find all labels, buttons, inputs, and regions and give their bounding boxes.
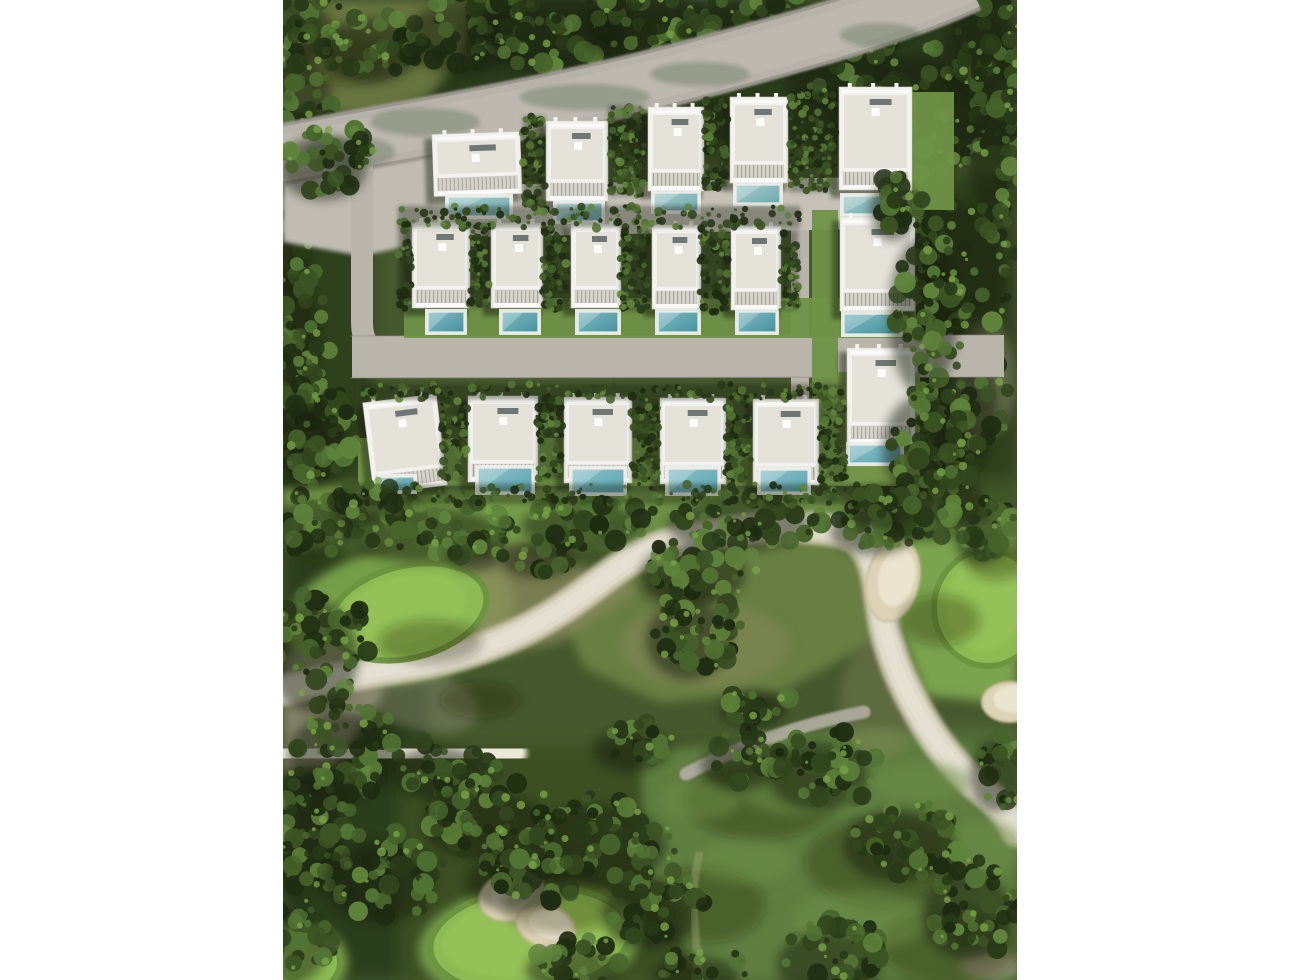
foliage [863, 933, 883, 953]
foliage-highlight [603, 938, 608, 943]
foliage [456, 23, 463, 30]
foliage [328, 708, 340, 720]
hedge-foliage [623, 269, 629, 275]
villa-parapet [842, 90, 909, 93]
foliage [335, 870, 346, 881]
foliage [330, 852, 340, 862]
hedge-foliage [677, 386, 681, 390]
page [0, 0, 1290, 980]
hedge-foliage [509, 214, 517, 222]
louver-band [652, 173, 700, 186]
hedge-foliage [562, 245, 571, 254]
foliage [650, 628, 661, 639]
foliage [636, 528, 646, 538]
hedge-foliage [476, 279, 480, 283]
hedge-foliage [702, 110, 710, 118]
hedge-foliage [707, 233, 710, 236]
villa [640, 103, 704, 199]
foliage [943, 237, 951, 245]
hedge-foliage [834, 439, 842, 447]
hedge-foliage [737, 475, 745, 483]
hedge-foliage [746, 500, 750, 504]
foliage [389, 11, 406, 28]
foliage-highlight [322, 957, 330, 965]
hedge-foliage [588, 204, 595, 211]
villa-sill [734, 178, 784, 182]
hedge-foliage [458, 413, 464, 419]
foliage [910, 346, 917, 353]
hedge-foliage [537, 383, 540, 386]
hedge-foliage [642, 297, 648, 303]
hedge-foliage [791, 141, 795, 145]
hedge-foliage [538, 140, 543, 145]
foliage [652, 540, 666, 554]
foliage-highlight [979, 761, 983, 765]
foliage [551, 13, 562, 24]
hedge-foliage [578, 220, 582, 224]
foliage-highlight [843, 746, 846, 749]
foliage-highlight [953, 453, 956, 456]
foliage [992, 727, 1009, 744]
skylight [673, 237, 688, 243]
foliage-highlight [656, 555, 661, 560]
foliage-highlight [700, 957, 706, 963]
villa-parapet [663, 401, 723, 404]
hedge-foliage [796, 139, 801, 144]
louver-band [550, 183, 604, 196]
hedge-foliage [607, 136, 612, 141]
hedge-foliage [561, 497, 568, 504]
hedge-foliage [794, 99, 798, 103]
foliage-highlight [965, 502, 973, 510]
foliage-highlight [932, 488, 939, 495]
hedge-foliage [471, 230, 475, 234]
hedge-foliage [778, 308, 782, 312]
foliage [964, 432, 971, 439]
foliage [648, 13, 669, 34]
foliage [658, 907, 669, 918]
foliage [741, 731, 757, 747]
hedge-foliage [724, 394, 728, 398]
foliage [999, 804, 1006, 811]
foliage [890, 427, 899, 436]
hedge-foliage [632, 138, 636, 142]
foliage [309, 72, 324, 87]
foliage-highlight [314, 808, 319, 813]
foliage [447, 545, 463, 561]
foliage [773, 757, 793, 777]
foliage [435, 13, 444, 22]
hedge-foliage [746, 398, 751, 403]
foliage [894, 272, 915, 293]
foliage-highlight [492, 517, 496, 521]
foliage [916, 309, 933, 326]
foliage-highlight [992, 523, 998, 529]
hedge-foliage [777, 276, 785, 284]
foliage-highlight [405, 509, 413, 517]
foliage-highlight [314, 881, 320, 887]
hedge-foliage [528, 130, 536, 138]
hedge-foliage [783, 491, 787, 495]
foliage [358, 145, 370, 157]
foliage [809, 782, 816, 789]
foliage [312, 520, 318, 526]
foliage-highlight [304, 269, 310, 275]
parapet-fin [855, 344, 859, 350]
hedge-foliage [482, 226, 489, 233]
hedge-foliage [453, 471, 460, 478]
hedge-foliage [654, 447, 658, 451]
hedge-foliage [550, 412, 554, 416]
hedge-foliage [577, 490, 581, 494]
foliage-highlight [696, 949, 703, 956]
foliage [694, 967, 701, 974]
foliage [591, 10, 608, 27]
pool-area [499, 309, 541, 335]
foliage [851, 841, 862, 852]
hedge-foliage [718, 489, 726, 497]
hedge-foliage [659, 498, 662, 501]
foliage-highlight [711, 589, 717, 595]
foliage [295, 587, 311, 603]
hedge-foliage [608, 153, 613, 158]
hedge-foliage [523, 189, 532, 198]
parapet-fin [471, 129, 475, 135]
hedge-foliage [484, 235, 488, 239]
foliage-highlight [382, 730, 387, 735]
foliage [292, 664, 299, 671]
foliage [500, 537, 508, 545]
foliage-highlight [676, 970, 680, 974]
foliage-highlight [540, 791, 548, 799]
foliage-highlight [311, 729, 317, 735]
hedge [607, 103, 647, 198]
foliage [909, 851, 929, 871]
hedge-foliage [424, 217, 431, 224]
hedge-foliage [822, 156, 826, 160]
hedge-foliage [826, 500, 832, 506]
foliage-highlight [421, 776, 428, 783]
hedge-foliage [505, 387, 510, 392]
hedge-foliage [818, 145, 822, 149]
hedge-foliage [752, 482, 757, 487]
foliage-highlight [342, 652, 350, 660]
hedge-foliage [832, 457, 840, 465]
hedge-foliage [639, 239, 646, 246]
foliage-highlight [651, 904, 659, 912]
foliage-highlight [315, 397, 321, 403]
hedge-foliage [806, 387, 811, 392]
foliage [369, 870, 379, 880]
foliage [711, 760, 722, 771]
foliage-highlight [337, 540, 343, 546]
hedge-foliage [415, 485, 423, 493]
hedge-foliage [508, 381, 516, 389]
hedge-foliage [815, 488, 823, 496]
hedge-foliage [825, 135, 830, 140]
hedge-foliage [435, 388, 441, 394]
foliage [944, 465, 958, 479]
hedge-foliage [621, 168, 628, 175]
hedge-foliage [636, 407, 639, 410]
shadow-patch [378, 620, 482, 664]
hedge-foliage [446, 429, 452, 435]
hedge-foliage [399, 257, 403, 261]
hedge-foliage [725, 421, 730, 426]
hedge-foliage [583, 211, 590, 218]
foliage-highlight [732, 691, 737, 696]
hedge-foliage [611, 105, 616, 110]
hedge-foliage [789, 159, 793, 163]
hedge-foliage [800, 177, 804, 181]
foliage [928, 215, 944, 231]
hedge-foliage [559, 253, 566, 260]
foliage-highlight [321, 776, 325, 780]
foliage-highlight [949, 276, 956, 283]
foliage-highlight [528, 59, 535, 66]
hedge-foliage [822, 161, 830, 169]
foliage [910, 840, 921, 851]
hedge-foliage [685, 203, 692, 210]
foliage [451, 519, 463, 531]
foliage [702, 636, 711, 645]
foliage [972, 67, 987, 82]
foliage [498, 515, 512, 529]
foliage [624, 36, 638, 50]
hedge-foliage [562, 259, 571, 268]
hedge-foliage [496, 211, 504, 219]
foliage-highlight [630, 736, 633, 739]
hedge-foliage [624, 494, 628, 498]
foliage [296, 340, 306, 350]
foliage [745, 548, 759, 562]
hedge-foliage [781, 392, 787, 398]
foliage [457, 536, 467, 546]
foliage [430, 824, 443, 837]
hedge-foliage [440, 216, 444, 220]
hedge-foliage [795, 148, 804, 157]
foliage [1001, 267, 1012, 278]
foliage [714, 620, 724, 630]
hedge-foliage [637, 228, 642, 233]
hedge-foliage [540, 258, 545, 263]
foliage-highlight [686, 882, 693, 889]
hedge-foliage [609, 127, 616, 134]
roof-unit [690, 419, 698, 427]
hedge-foliage [406, 386, 410, 390]
foliage-highlight [626, 530, 630, 534]
road-shadow [840, 23, 920, 47]
skylight [593, 409, 613, 415]
hedge-foliage [757, 499, 764, 506]
foliage-highlight [587, 845, 594, 852]
foliage-highlight [757, 758, 762, 763]
foliage [605, 530, 627, 552]
foliage [995, 188, 1009, 202]
hedge-foliage [397, 391, 404, 398]
hedge-foliage [635, 239, 640, 244]
parapet-fin [499, 128, 503, 134]
foliage-highlight [660, 922, 669, 931]
foliage [345, 704, 353, 712]
hedge-foliage [827, 463, 830, 466]
foliage [860, 533, 875, 548]
foliage [282, 92, 293, 103]
foliage [297, 495, 307, 505]
foliage-highlight [533, 514, 539, 520]
hedge-foliage [621, 395, 625, 399]
foliage [535, 16, 544, 25]
parapet-fin [673, 103, 677, 109]
foliage [472, 747, 481, 756]
foliage [850, 827, 860, 837]
hedge-foliage [444, 497, 450, 503]
foliage-highlight [975, 76, 979, 80]
foliage [978, 766, 999, 787]
villa-sill [416, 303, 466, 307]
hedge-foliage [715, 302, 719, 306]
foliage-highlight [377, 847, 386, 856]
foliage-highlight [695, 609, 700, 614]
hedge-foliage [836, 404, 844, 412]
foliage-highlight [1001, 241, 1008, 248]
foliage-highlight [881, 861, 887, 867]
foliage-highlight [360, 719, 368, 727]
foliage [629, 884, 636, 891]
foliage-highlight [976, 450, 981, 455]
foliage [365, 888, 379, 902]
foliage [908, 391, 926, 409]
foliage [362, 158, 369, 165]
hedge-foliage [720, 298, 728, 306]
hedge-foliage [769, 210, 776, 217]
hedge-foliage [550, 460, 558, 468]
foliage-highlight [923, 388, 929, 394]
foliage-highlight [302, 335, 306, 339]
foliage [348, 902, 368, 922]
hedge-foliage [617, 187, 624, 194]
hedge-foliage [482, 212, 486, 216]
foliage [865, 527, 872, 534]
foliage-highlight [918, 868, 922, 872]
roof-unit [595, 418, 603, 426]
hedge-foliage [805, 138, 808, 141]
foliage [631, 837, 639, 845]
roof-unit [756, 118, 764, 126]
foliage [785, 933, 797, 945]
hedge-foliage [833, 449, 837, 453]
foliage [325, 388, 337, 400]
foliage-highlight [717, 512, 720, 515]
foliage [383, 904, 393, 914]
foliage [465, 778, 475, 788]
foliage [480, 860, 492, 872]
hedge-foliage [814, 109, 822, 117]
hedge-foliage [477, 241, 481, 245]
foliage [706, 966, 719, 979]
villa [483, 219, 543, 316]
hedge-foliage [642, 289, 647, 294]
foliage-highlight [358, 165, 362, 169]
hedge-foliage [625, 104, 634, 113]
hedge-foliage [638, 106, 641, 109]
hedge-foliage [717, 381, 726, 390]
hedge-foliage [822, 400, 830, 408]
hedge-foliage [543, 428, 552, 437]
hedge-foliage [640, 109, 646, 115]
hedge-foliage [818, 120, 824, 126]
hedge-foliage [801, 121, 804, 124]
foliage [336, 56, 343, 63]
foliage-highlight [403, 848, 409, 854]
hedge-foliage [482, 249, 488, 255]
hedge-foliage [527, 221, 531, 225]
hedge-foliage [703, 259, 709, 265]
hedge-foliage [549, 416, 554, 421]
foliage [791, 733, 806, 748]
hedge-foliage [635, 153, 641, 159]
foliage-highlight [905, 192, 913, 200]
hedge-foliage [645, 276, 652, 283]
hedge-foliage [640, 440, 644, 444]
foliage [447, 53, 468, 74]
foliage [338, 404, 354, 420]
hedge-foliage [816, 186, 822, 192]
foliage [973, 854, 986, 867]
foliage [510, 56, 525, 71]
road-shadow [650, 62, 750, 86]
foliage [293, 504, 313, 524]
hedge-foliage [609, 218, 613, 222]
foliage [732, 574, 739, 581]
roof-unit [675, 246, 683, 254]
hedge-foliage [820, 435, 829, 444]
foliage-highlight [303, 33, 310, 40]
hedge-foliage [707, 147, 712, 152]
hedge-foliage [794, 175, 800, 181]
hedge-foliage [727, 381, 733, 387]
hedge-foliage [725, 165, 729, 169]
foliage-highlight [686, 28, 692, 34]
hedge-foliage [406, 263, 415, 272]
hedge-foliage [535, 180, 538, 183]
foliage [671, 848, 678, 855]
foliage-highlight [447, 531, 452, 536]
hedge-foliage [444, 386, 450, 392]
hedge-foliage [712, 272, 715, 275]
foliage [389, 63, 403, 77]
hedge-foliage [913, 222, 920, 229]
foliage [942, 875, 953, 886]
foliage [571, 820, 592, 841]
hedge-foliage [368, 384, 371, 387]
foliage-highlight [941, 272, 945, 276]
foliage [551, 808, 568, 825]
hedge-foliage [828, 127, 836, 135]
hedge-foliage [824, 94, 829, 99]
foliage [440, 38, 457, 55]
foliage [340, 615, 351, 626]
foliage-highlight [314, 743, 317, 746]
hedge-foliage [717, 213, 722, 218]
foliage [418, 877, 427, 886]
foliage [986, 876, 1000, 890]
foliage-highlight [313, 329, 321, 337]
foliage [312, 609, 318, 615]
foliage-highlight [529, 34, 535, 40]
foliage [1007, 5, 1014, 12]
foliage [296, 795, 305, 804]
